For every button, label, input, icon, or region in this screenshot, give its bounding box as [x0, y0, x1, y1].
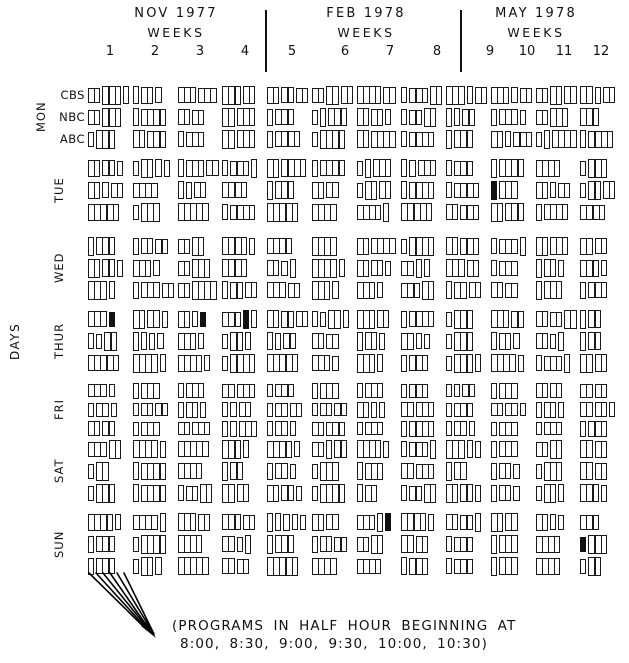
half-hour-divider [168, 284, 169, 297]
schedule-cell-thur-cbs-w10 [491, 308, 524, 330]
half-hour-divider [556, 441, 557, 458]
half-hour-divider [243, 485, 244, 501]
program-bar [564, 86, 576, 104]
schedule-cell-sun-abc-w3 [178, 555, 209, 577]
program-bar [383, 203, 389, 222]
program-bar [513, 132, 532, 147]
half-hour-divider [363, 206, 364, 219]
program-bar [102, 86, 121, 105]
half-hour-divider [243, 355, 244, 372]
program-bar [275, 333, 281, 350]
half-hour-divider [363, 560, 364, 573]
half-hour-divider [145, 516, 146, 529]
half-hour-divider [234, 515, 235, 529]
program-bar [595, 384, 607, 398]
program-bar [192, 237, 204, 256]
half-hour-divider [550, 260, 551, 276]
half-hour-divider [586, 355, 587, 372]
half-hour-divider [594, 558, 595, 575]
half-hour-divider [330, 559, 331, 574]
half-hour-divider [340, 109, 341, 125]
program-bar [454, 354, 473, 373]
program-bar [580, 559, 586, 574]
half-hour-divider [460, 422, 461, 435]
program-bar [275, 421, 287, 436]
half-hour-divider [241, 238, 242, 254]
program-bar [446, 108, 452, 127]
schedule-cell-wed-abc-w3 [178, 279, 217, 301]
half-hour-divider [204, 282, 205, 299]
program-bar [88, 88, 100, 103]
program-bar [115, 514, 121, 530]
schedule-cell-sat-cbs-w4 [222, 438, 249, 460]
schedule-cell-wed-nbc-w1 [88, 257, 123, 279]
schedule-cell-fri-abc-w9 [446, 419, 475, 438]
half-hour-divider [413, 514, 414, 530]
program-bar [491, 159, 497, 178]
schedule-cell-sat-cbs-w7 [357, 438, 390, 460]
half-hour-divider [228, 260, 229, 276]
schedule-cell-fri-abc-w3 [178, 419, 211, 438]
program-bar [550, 86, 562, 105]
program-bar [499, 181, 518, 199]
program-bar [564, 310, 576, 329]
half-hour-divider [340, 404, 341, 415]
program-bar-filled [200, 312, 206, 327]
schedule-cell-sun-abc-w5 [267, 555, 298, 577]
half-hour-divider [466, 404, 467, 416]
half-hour-divider [273, 239, 274, 253]
half-hour-divider [420, 514, 421, 530]
day-label-tue: TUE [49, 157, 69, 223]
schedule-cell-sun-abc-w7 [357, 555, 382, 577]
month-separator-line [265, 10, 267, 72]
program-bar [409, 132, 434, 147]
program-bar [365, 159, 371, 178]
schedule-cell-sun-nbc-w12 [580, 533, 607, 555]
program-bar [111, 403, 117, 417]
schedule-cell-thur-abc-w5 [267, 352, 298, 374]
half-hour-divider [190, 88, 191, 102]
half-hour-divider [243, 385, 244, 397]
program-bar [580, 161, 586, 176]
half-hour-divider [184, 558, 185, 574]
half-hour-divider [204, 89, 205, 102]
half-hour-divider [302, 312, 303, 326]
half-hour-divider [106, 356, 107, 370]
program-bar [428, 514, 434, 531]
program-bar [357, 310, 376, 329]
schedule-cell-sun-cbs-w2 [133, 511, 166, 533]
program-bar [133, 383, 139, 399]
schedule-cell-wed-abc-w6 [312, 279, 339, 301]
program-bar [290, 259, 296, 278]
half-hour-divider [338, 485, 339, 502]
program-bar [334, 440, 346, 458]
program-bar [601, 485, 607, 502]
half-hour-divider [184, 536, 185, 552]
half-hour-divider [369, 206, 370, 219]
program-bar [239, 402, 251, 417]
program-bar [595, 402, 607, 417]
half-hour-divider [407, 536, 408, 552]
program-bar [230, 462, 242, 480]
schedule-cell-fri-nbc-w10 [491, 400, 526, 419]
half-hour-divider [236, 162, 237, 175]
half-hour-divider [347, 87, 348, 103]
program-bar [275, 181, 294, 199]
schedule-cell-mon-abc-w2 [133, 128, 166, 150]
callout-line [96, 573, 148, 630]
schedule-cell-thur-nbc-w10 [491, 330, 520, 352]
program-bar [580, 130, 586, 148]
schedule-cell-sun-nbc-w10 [491, 533, 518, 555]
half-hour-divider [204, 515, 205, 530]
half-hour-divider [452, 205, 453, 219]
schedule-cell-mon-nbc-w1 [88, 106, 121, 128]
half-hour-divider [281, 182, 282, 198]
schedule-cell-thur-nbc-w3 [178, 330, 205, 352]
program-bar [357, 440, 382, 458]
week-number-5: 5 [281, 44, 303, 59]
program-bar [267, 131, 273, 148]
half-hour-divider [184, 312, 185, 327]
schedule-cell-sat-abc-w1 [88, 482, 115, 504]
half-hour-divider [422, 385, 423, 397]
program-bar [409, 355, 428, 371]
half-hour-divider [108, 260, 109, 276]
half-hour-divider [586, 385, 587, 397]
schedule-cell-wed-cbs-w8 [401, 235, 434, 257]
half-hour-divider [324, 559, 325, 574]
half-hour-divider [369, 87, 370, 103]
program-bar [312, 132, 318, 147]
schedule-cell-tue-nbc-w5 [267, 179, 294, 201]
half-hour-divider [548, 559, 549, 574]
half-hour-divider [586, 109, 587, 125]
half-hour-divider [505, 334, 506, 349]
program-bar [357, 462, 363, 480]
program-bar [446, 403, 452, 417]
program-bar [300, 515, 306, 530]
half-hour-divider [550, 423, 551, 434]
program-bar [520, 110, 526, 125]
program-bar [550, 312, 562, 327]
schedule-cell-tue-nbc-w4 [222, 179, 247, 201]
half-hour-divider [554, 537, 555, 552]
schedule-cell-tue-nbc-w3 [178, 179, 207, 201]
day-label-fri: FRI [49, 381, 69, 438]
schedule-cell-fri-cbs-w11 [536, 381, 563, 400]
half-hour-divider [147, 404, 148, 415]
program-bar [460, 515, 472, 530]
program-bar [446, 259, 465, 277]
program-bar [178, 131, 184, 147]
program-bar [96, 536, 115, 552]
schedule-cell-sun-nbc-w9 [446, 533, 473, 555]
schedule-cell-tue-abc-w7 [357, 201, 390, 223]
program-bar [283, 333, 295, 349]
program-bar [341, 86, 353, 104]
schedule-cell-mon-abc-w5 [267, 128, 300, 150]
schedule-cell-thur-cbs-w8 [401, 308, 434, 330]
program-bar [204, 355, 210, 371]
half-hour-divider [517, 160, 518, 176]
program-bar [550, 182, 556, 198]
half-hour-divider [371, 423, 372, 434]
program-bar [409, 311, 434, 327]
program-bar [499, 159, 524, 177]
half-hour-divider [511, 423, 512, 435]
half-hour-divider [251, 422, 252, 436]
schedule-cell-mon-nbc-w11 [536, 106, 569, 128]
program-bar [267, 238, 292, 254]
half-hour-divider [234, 441, 235, 458]
half-hour-divider [548, 161, 549, 176]
half-hour-divider [466, 162, 467, 175]
program-bar [595, 87, 601, 104]
program-bar [109, 281, 115, 299]
program-bar [198, 88, 217, 103]
half-hour-divider [102, 463, 103, 480]
half-hour-divider [550, 205, 551, 219]
program-bar [357, 108, 369, 126]
half-hour-divider [601, 283, 602, 297]
program-bar [409, 182, 434, 199]
program-bar [296, 311, 308, 327]
half-hour-divider [117, 184, 118, 197]
half-hour-divider [102, 131, 103, 148]
program-bar [267, 421, 273, 436]
program-bar [141, 238, 153, 254]
half-hour-divider [100, 515, 101, 530]
program-bar [416, 464, 435, 479]
half-hour-divider [371, 182, 372, 199]
half-hour-divider [228, 385, 229, 397]
half-hour-divider [147, 558, 148, 575]
half-hour-divider [184, 514, 185, 530]
program-bar [580, 421, 586, 437]
program-bar [377, 282, 383, 298]
program-bar [446, 312, 452, 327]
half-hour-divider [243, 206, 244, 219]
program-bar [133, 537, 139, 552]
program-bar [192, 311, 198, 327]
schedule-cell-wed-abc-w1 [88, 279, 115, 301]
half-hour-divider [190, 464, 191, 478]
schedule-cell-sun-nbc-w5 [267, 533, 294, 555]
program-bar [222, 130, 234, 149]
program-bar [160, 441, 166, 458]
schedule-cell-tue-abc-w6 [312, 201, 337, 223]
half-hour-divider [526, 133, 527, 146]
half-hour-divider [607, 132, 608, 147]
half-hour-divider [190, 558, 191, 574]
program-bar [141, 332, 147, 350]
schedule-cell-wed-abc-w10 [491, 279, 518, 301]
schedule-cell-thur-abc-w1 [88, 352, 119, 374]
program-bar [178, 87, 197, 103]
program-bar [580, 332, 586, 351]
schedule-cell-wed-nbc-w7 [357, 257, 392, 279]
half-hour-divider [153, 384, 154, 398]
program-bar [237, 130, 256, 148]
half-hour-divider [139, 355, 140, 372]
half-hour-divider [192, 384, 193, 397]
half-hour-divider [594, 132, 595, 147]
half-hour-divider [330, 238, 331, 255]
schedule-cell-wed-cbs-w1 [88, 235, 115, 257]
half-hour-divider [422, 133, 423, 146]
program-bar [595, 463, 607, 480]
half-hour-divider [287, 110, 288, 124]
half-hour-divider [377, 464, 378, 479]
program-bar [446, 421, 452, 436]
program-bar [536, 237, 548, 256]
program-bar [206, 160, 218, 176]
callout-line [89, 573, 146, 629]
half-hour-divider [424, 161, 425, 175]
schedule-cell-wed-cbs-w3 [178, 235, 205, 257]
program-bar [312, 464, 318, 479]
program-bar [133, 130, 145, 148]
program-bar [401, 485, 407, 501]
half-hour-divider [375, 87, 376, 103]
half-hour-divider [139, 516, 140, 529]
program-bar [430, 440, 436, 459]
schedule-cell-fri-abc-w10 [491, 419, 518, 438]
half-hour-divider [554, 161, 555, 176]
program-bar [536, 383, 548, 398]
half-hour-divider [511, 110, 512, 124]
program-bar [296, 486, 302, 501]
program-bar-filled [243, 310, 249, 329]
program-bar [491, 354, 516, 372]
half-hour-divider [285, 239, 286, 253]
program-bar [275, 109, 294, 125]
half-hour-divider [334, 109, 335, 125]
program-bar [141, 557, 153, 576]
half-hour-divider [371, 464, 372, 479]
half-hour-divider [473, 206, 474, 219]
half-hour-divider [389, 132, 390, 147]
schedule-cell-sat-nbc-w11 [536, 460, 563, 482]
half-hour-divider [609, 88, 610, 102]
half-hour-divider [198, 423, 199, 434]
half-hour-divider [466, 355, 467, 372]
half-hour-divider [108, 87, 109, 104]
schedule-cell-thur-abc-w10 [491, 352, 524, 374]
program-bar [377, 513, 383, 532]
program-bar [454, 537, 473, 552]
half-hour-divider [377, 384, 378, 397]
schedule-cell-sat-nbc-w3 [178, 460, 203, 482]
program-bar [401, 384, 407, 398]
program-bar [281, 159, 306, 177]
half-hour-divider [236, 355, 237, 372]
schedule-cell-tue-abc-w3 [178, 201, 209, 223]
half-hour-divider [594, 160, 595, 177]
schedule-cell-sun-nbc-w7 [357, 533, 384, 555]
half-hour-divider [422, 537, 423, 552]
program-bar [96, 462, 108, 481]
schedule-cell-sun-cbs-w12 [580, 511, 599, 533]
schedule-cell-thur-cbs-w1 [88, 308, 115, 330]
program-bar [178, 311, 190, 328]
program-bar [401, 283, 420, 298]
half-hour-divider [332, 335, 333, 348]
schedule-cell-thur-abc-w11 [536, 352, 571, 374]
half-hour-divider [497, 355, 498, 371]
program-bar [133, 310, 145, 329]
program-bar [536, 88, 548, 103]
half-hour-divider [385, 160, 386, 176]
half-hour-divider [153, 204, 154, 221]
program-bar [153, 260, 159, 276]
program-bar [186, 160, 205, 177]
half-hour-divider [422, 422, 423, 436]
half-hour-divider [511, 442, 512, 456]
program-bar [178, 159, 184, 177]
schedule-cell-fri-abc-w8 [401, 419, 434, 438]
program-bar [491, 463, 497, 480]
half-hour-divider [369, 441, 370, 457]
program-bar [505, 203, 524, 221]
program-bar [491, 310, 510, 328]
program-bar [383, 441, 389, 458]
program-bar [446, 484, 458, 503]
half-hour-divider [511, 204, 512, 220]
schedule-cell-tue-cbs-w1 [88, 157, 123, 179]
half-hour-divider [102, 559, 103, 573]
program-bar [320, 462, 339, 481]
half-hour-divider [601, 239, 602, 253]
half-hour-divider [151, 516, 152, 529]
half-hour-divider [243, 109, 244, 125]
program-bar [588, 310, 600, 328]
schedule-cell-thur-cbs-w6 [312, 308, 349, 330]
program-bar [178, 181, 184, 199]
half-hour-divider [383, 311, 384, 327]
half-hour-divider [601, 355, 602, 371]
schedule-cell-mon-abc-w6 [312, 128, 345, 150]
half-hour-divider [159, 486, 160, 501]
schedule-cell-wed-nbc-w8 [401, 257, 430, 279]
half-hour-divider [159, 110, 160, 125]
half-hour-divider [519, 133, 520, 146]
half-hour-divider [273, 486, 274, 501]
half-hour-divider [228, 109, 229, 126]
program-bar [520, 237, 526, 256]
program-bar [544, 462, 563, 481]
program-bar [357, 484, 363, 502]
half-hour-divider [369, 283, 370, 298]
half-hour-divider [139, 261, 140, 276]
half-hour-divider [556, 87, 557, 104]
program-bar [133, 161, 139, 176]
program-bar [401, 203, 432, 221]
schedule-cell-sat-cbs-w12 [580, 438, 607, 460]
half-hour-divider [542, 515, 543, 530]
program-bar [275, 403, 287, 417]
program-bar [424, 484, 436, 503]
program-bar [164, 160, 170, 177]
half-hour-divider [234, 87, 235, 104]
half-hour-divider [542, 238, 543, 255]
program-bar [320, 312, 326, 327]
schedule-cell-mon-cbs-w4 [222, 84, 255, 106]
schedule-cell-sat-abc-w7 [357, 482, 378, 504]
